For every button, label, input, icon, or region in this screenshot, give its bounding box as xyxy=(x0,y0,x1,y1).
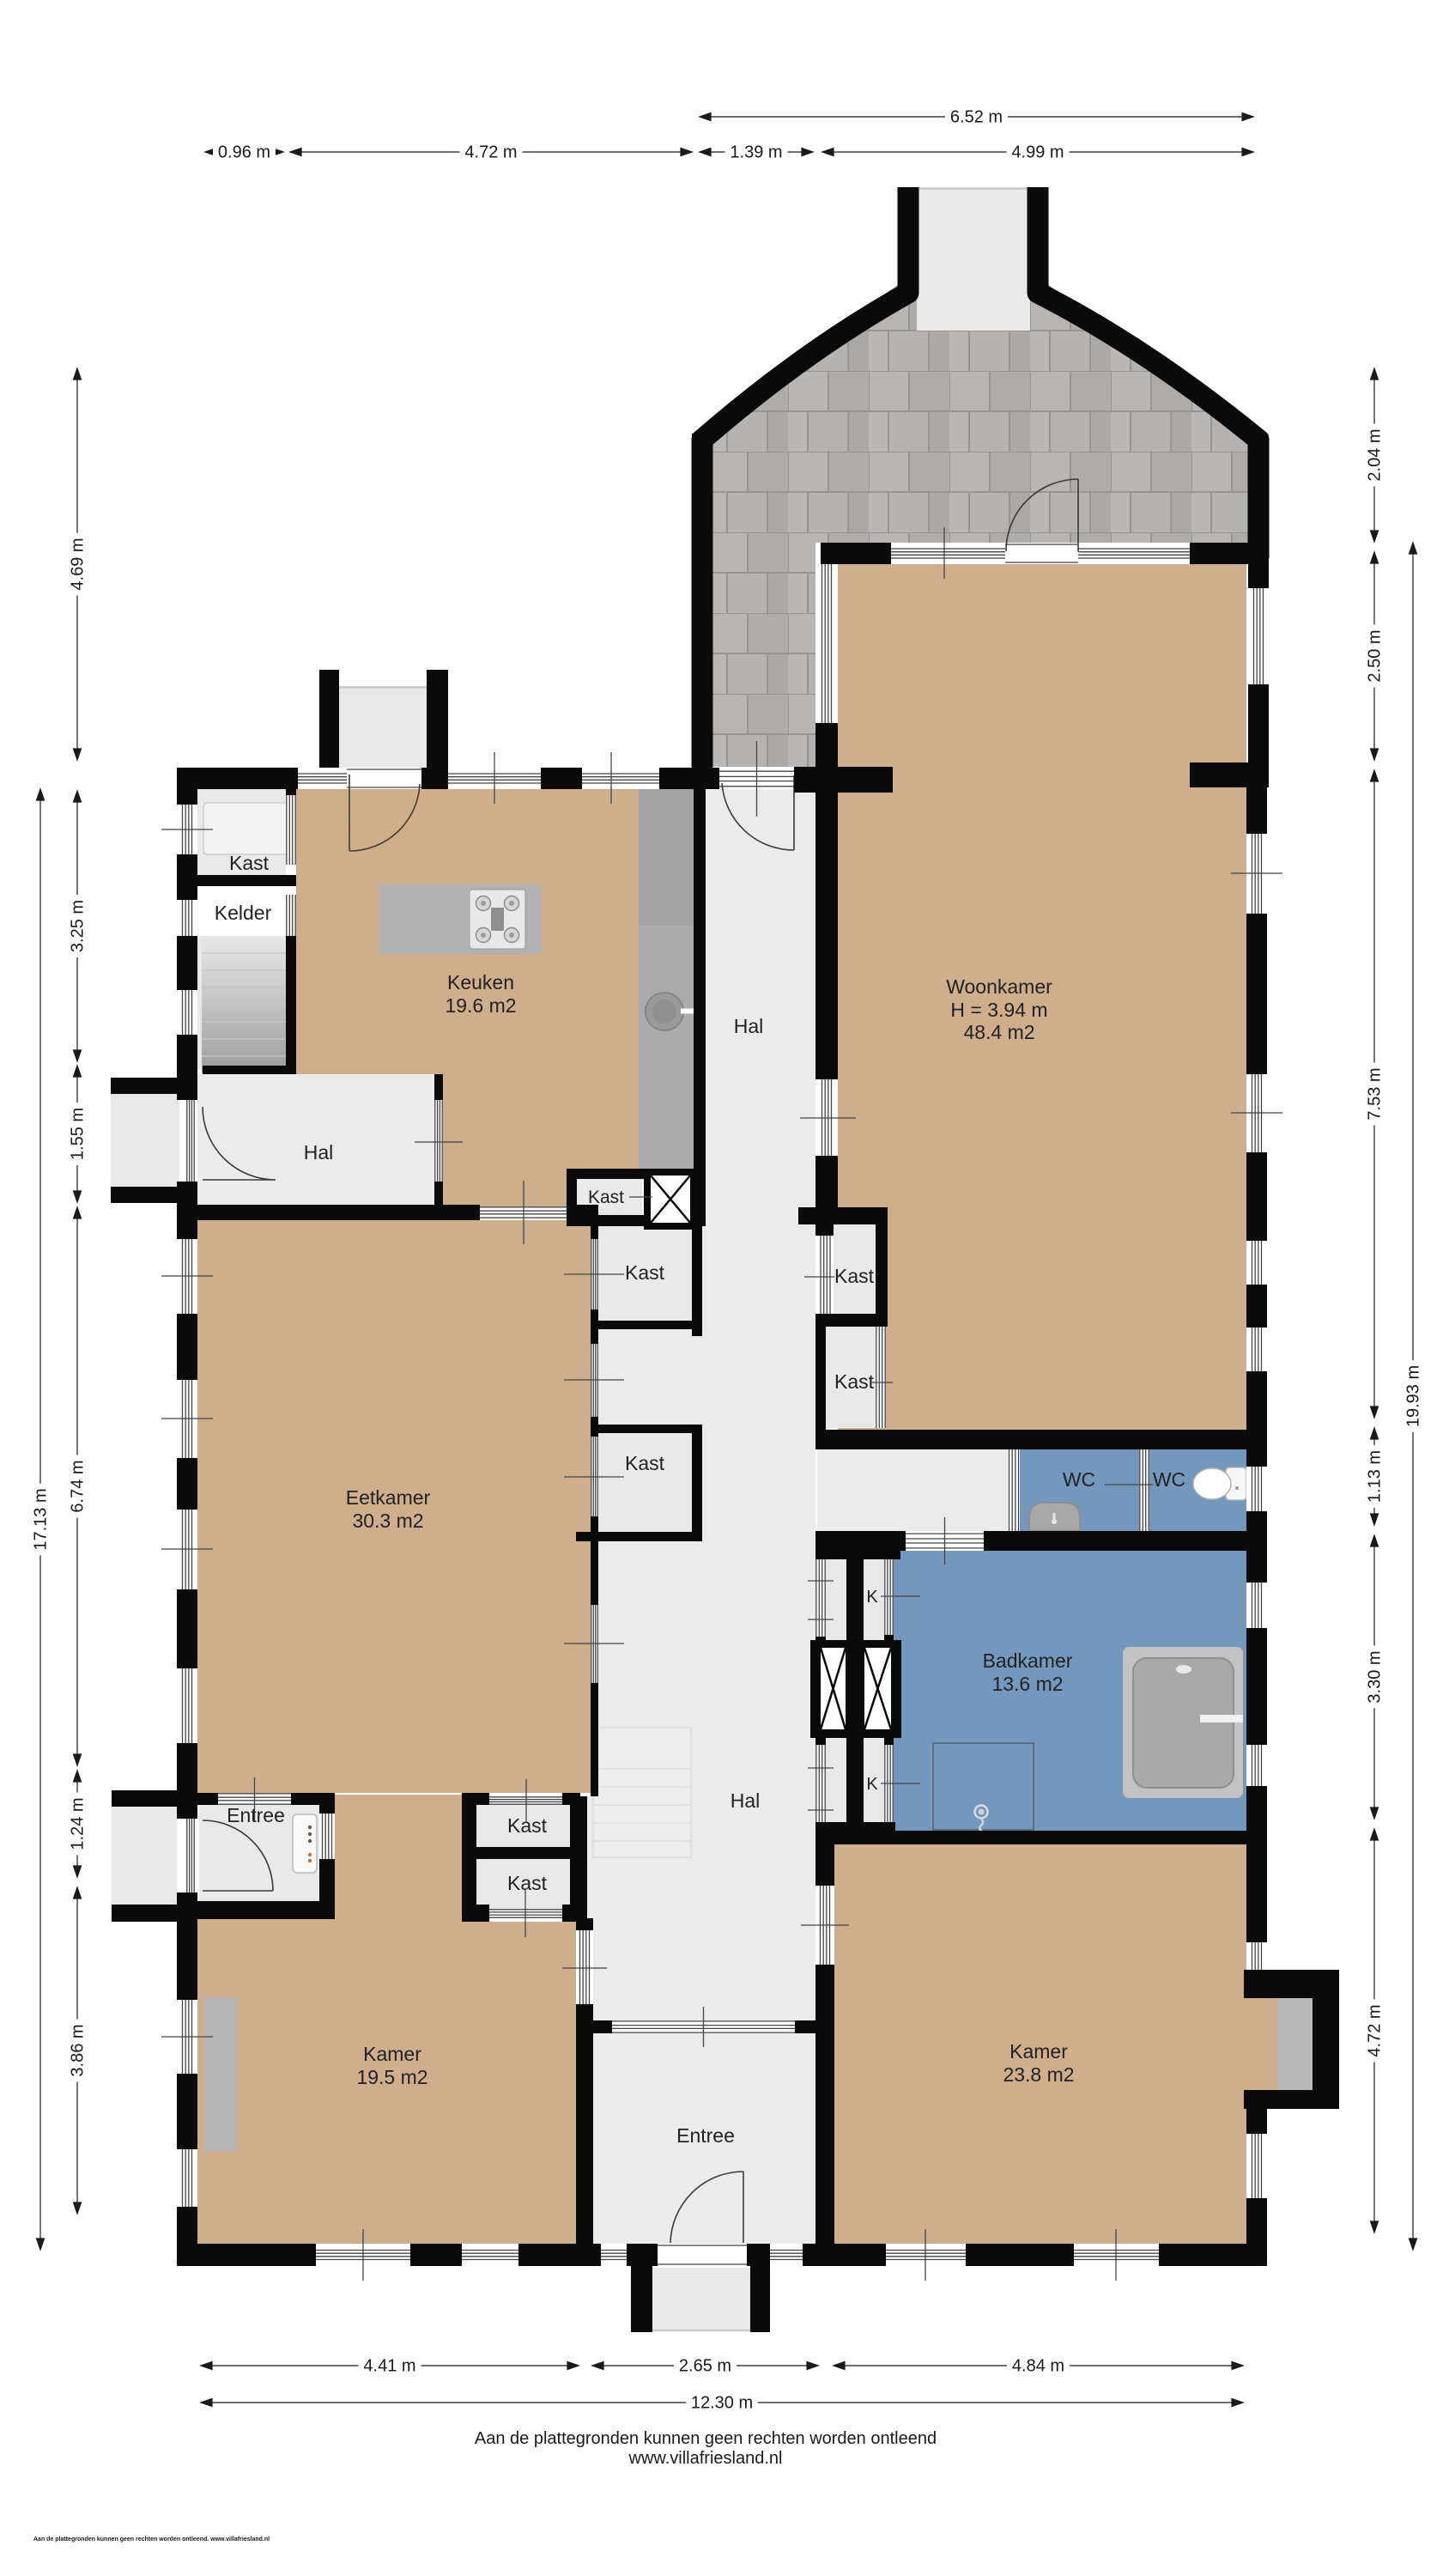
svg-text:4.41 m: 4.41 m xyxy=(363,2357,415,2376)
svg-text:23.8 m2: 23.8 m2 xyxy=(1003,2063,1074,2086)
svg-text:17.13 m: 17.13 m xyxy=(32,1488,51,1550)
svg-text:Kelder: Kelder xyxy=(215,902,272,924)
svg-text:3.25 m: 3.25 m xyxy=(69,900,88,952)
svg-text:K: K xyxy=(866,1775,878,1794)
svg-text:3.86 m: 3.86 m xyxy=(69,2024,88,2076)
svg-text:Kast: Kast xyxy=(625,1452,665,1474)
svg-text:2.04 m: 2.04 m xyxy=(1366,428,1385,481)
svg-text:Eetkamer: Eetkamer xyxy=(346,1486,431,1509)
svg-text:6.52 m: 6.52 m xyxy=(950,108,1003,127)
svg-text:Keuken: Keuken xyxy=(447,971,514,993)
svg-text:Badkamer: Badkamer xyxy=(983,1649,1073,1672)
svg-text:7.53 m: 7.53 m xyxy=(1366,1067,1385,1120)
svg-text:WC: WC xyxy=(1153,1468,1185,1491)
svg-text:Aan de plattegronden kunnen ge: Aan de plattegronden kunnen geen rechten… xyxy=(475,2429,937,2448)
svg-text:Kast: Kast xyxy=(834,1370,875,1393)
svg-text:6.74 m: 6.74 m xyxy=(69,1460,88,1512)
svg-text:4.84 m: 4.84 m xyxy=(1012,2357,1064,2376)
svg-text:WC: WC xyxy=(1063,1468,1095,1491)
svg-text:2.50 m: 2.50 m xyxy=(1366,629,1385,682)
svg-text:30.3 m2: 30.3 m2 xyxy=(352,1510,423,1532)
svg-text:Kamer: Kamer xyxy=(1009,2040,1068,2063)
svg-text:Kast: Kast xyxy=(834,1265,875,1287)
svg-text:4.69 m: 4.69 m xyxy=(69,538,88,590)
svg-text:Kast: Kast xyxy=(507,1814,548,1837)
svg-text:Entree: Entree xyxy=(227,1804,285,1826)
svg-text:0.96 m: 0.96 m xyxy=(218,143,270,162)
svg-text:13.6 m2: 13.6 m2 xyxy=(991,1673,1063,1695)
svg-text:2.65 m: 2.65 m xyxy=(679,2357,731,2376)
svg-text:1.13 m: 1.13 m xyxy=(1366,1450,1385,1503)
svg-text:www.villafriesland.nl: www.villafriesland.nl xyxy=(628,2449,783,2468)
svg-text:Hal: Hal xyxy=(731,1789,761,1812)
svg-text:Hal: Hal xyxy=(304,1141,334,1163)
svg-text:Kast: Kast xyxy=(229,852,270,874)
svg-text:Kast: Kast xyxy=(588,1188,624,1207)
svg-text:4.72 m: 4.72 m xyxy=(1366,2004,1385,2057)
svg-text:19.93 m: 19.93 m xyxy=(1404,1365,1423,1427)
svg-text:48.4 m2: 48.4 m2 xyxy=(963,1021,1034,1043)
svg-text:Hal: Hal xyxy=(734,1015,764,1037)
svg-text:4.99 m: 4.99 m xyxy=(1011,143,1064,162)
svg-text:Woonkamer: Woonkamer xyxy=(946,975,1052,998)
svg-text:19.5 m2: 19.5 m2 xyxy=(356,2066,427,2088)
svg-text:Entree: Entree xyxy=(676,2124,735,2147)
svg-text:Kamer: Kamer xyxy=(363,2043,421,2065)
svg-text:Kast: Kast xyxy=(625,1261,665,1284)
svg-text:19.6 m2: 19.6 m2 xyxy=(445,994,516,1017)
svg-text:Kast: Kast xyxy=(507,1872,548,1894)
svg-text:1.55 m: 1.55 m xyxy=(69,1108,88,1160)
svg-text:1.39 m: 1.39 m xyxy=(730,143,782,162)
svg-text:4.72 m: 4.72 m xyxy=(464,143,517,162)
svg-text:Aan de plattegronden kunnen ge: Aan de plattegronden kunnen geen rechten… xyxy=(33,2537,270,2543)
svg-text:12.30 m: 12.30 m xyxy=(691,2394,753,2413)
svg-text:H = 3.94 m: H = 3.94 m xyxy=(950,999,1047,1021)
svg-text:1.24 m: 1.24 m xyxy=(69,1797,88,1850)
svg-text:K: K xyxy=(866,1588,878,1607)
svg-text:3.30 m: 3.30 m xyxy=(1366,1650,1385,1703)
